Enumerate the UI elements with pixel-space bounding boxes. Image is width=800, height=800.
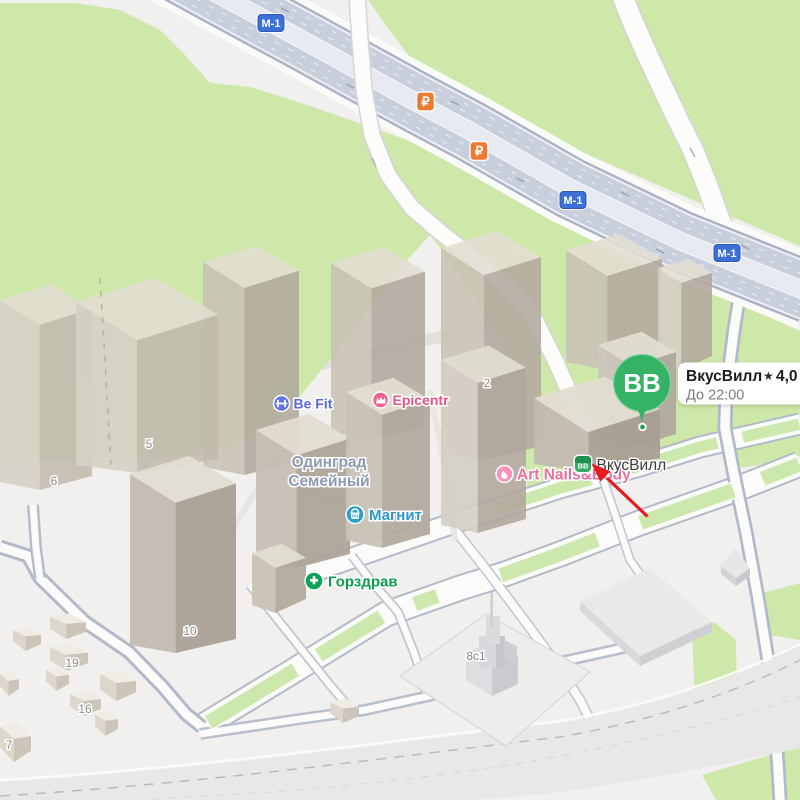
svg-text:10: 10 (183, 624, 197, 638)
svg-text:Семейный: Семейный (288, 473, 369, 490)
svg-text:Be Fit: Be Fit (294, 396, 333, 412)
svg-text:₽: ₽ (421, 94, 430, 109)
svg-text:ВкусВилл: ВкусВилл (686, 368, 762, 385)
svg-text:BB: BB (623, 368, 661, 398)
svg-text:16: 16 (78, 702, 92, 716)
svg-text:4,0: 4,0 (776, 368, 798, 385)
svg-text:6: 6 (51, 474, 58, 488)
svg-text:До 22:00: До 22:00 (686, 388, 744, 404)
svg-text:Магнит: Магнит (369, 507, 422, 524)
svg-text:8с1: 8с1 (466, 649, 486, 663)
svg-text:М-1: М-1 (262, 18, 281, 30)
svg-text:ВВ: ВВ (578, 462, 589, 471)
svg-text:19: 19 (65, 656, 79, 670)
svg-text:М-1: М-1 (564, 195, 583, 207)
svg-text:₽: ₽ (475, 144, 484, 159)
svg-text:Одинград: Одинград (292, 454, 367, 471)
svg-text:М-1: М-1 (718, 248, 737, 260)
svg-text:Горздрав: Горздрав (328, 574, 398, 591)
svg-text:2: 2 (484, 376, 491, 390)
svg-text:5: 5 (146, 437, 153, 451)
svg-text:★: ★ (763, 369, 774, 383)
svg-text:7: 7 (6, 738, 13, 752)
svg-text:Epicentr: Epicentr (393, 392, 450, 408)
